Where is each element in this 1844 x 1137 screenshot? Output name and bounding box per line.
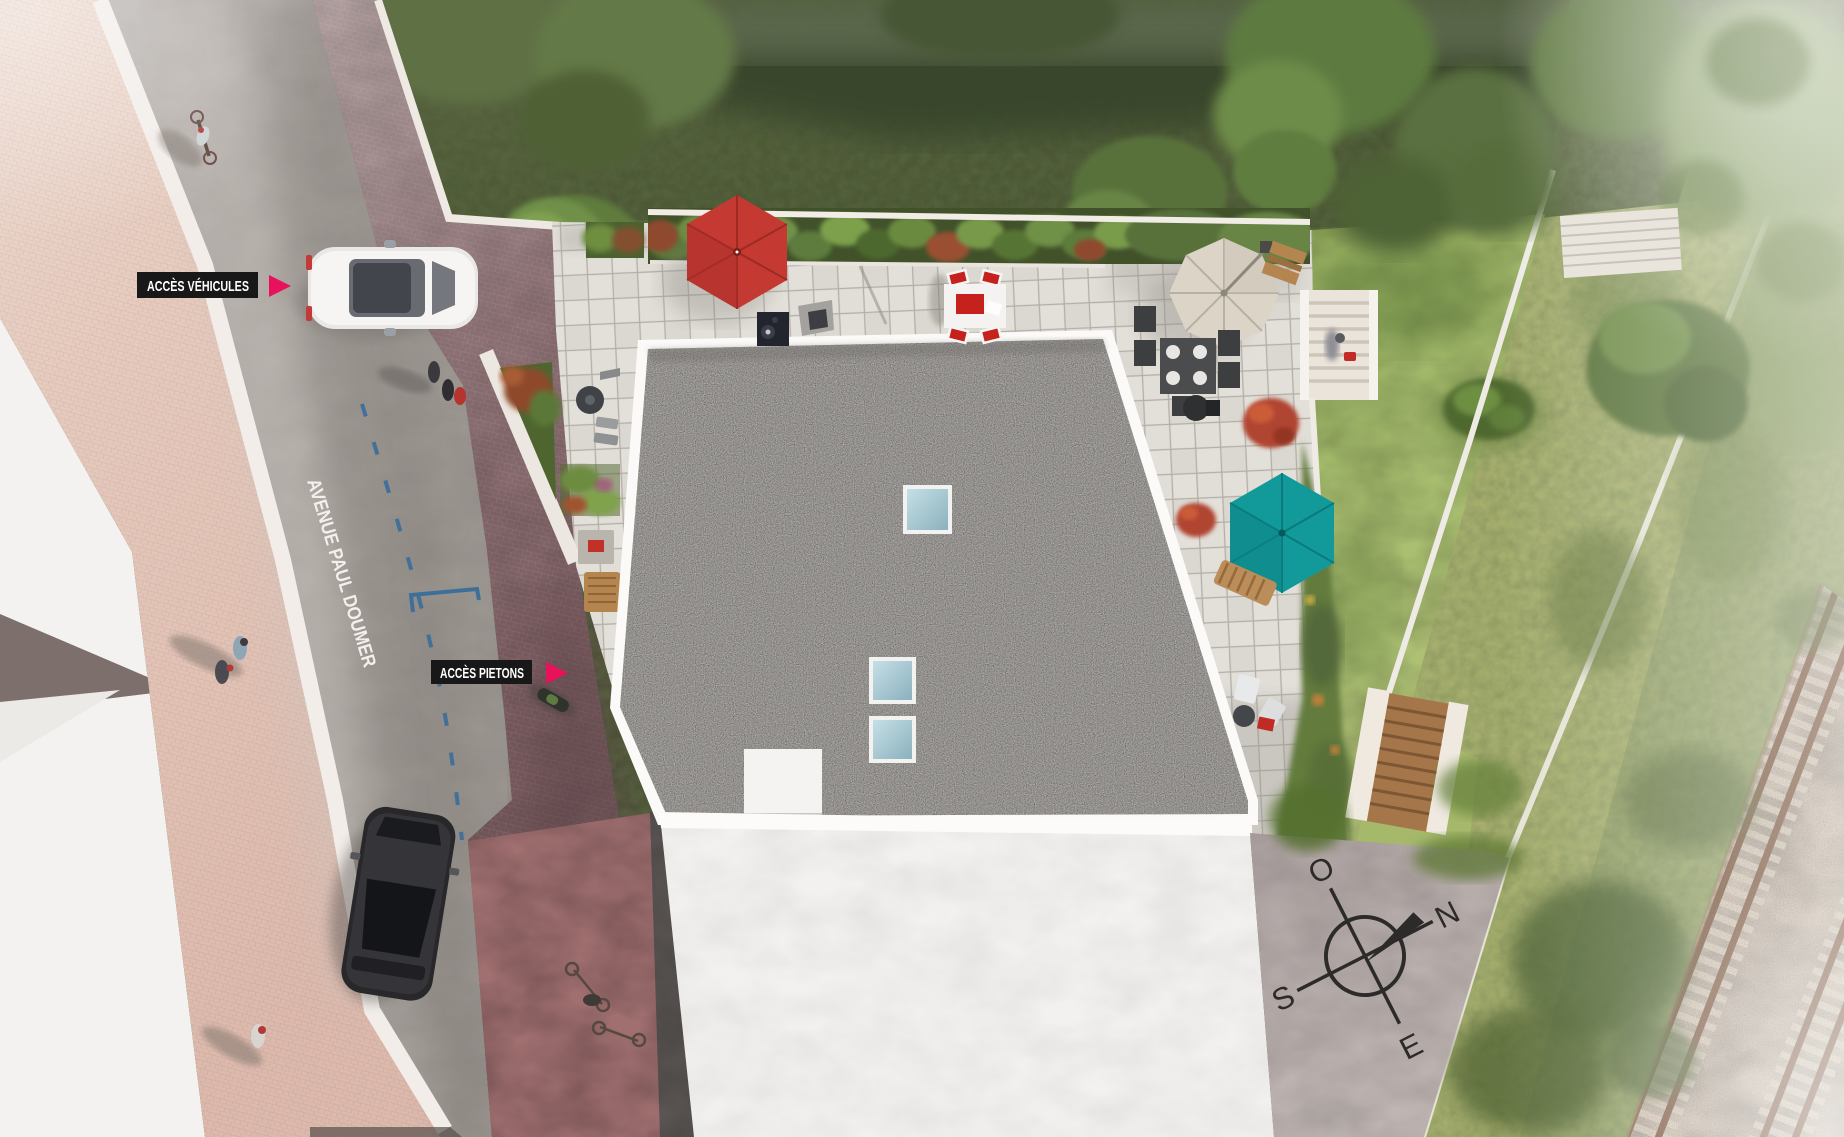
svg-text:ACCÈS PIETONS: ACCÈS PIETONS <box>440 665 524 682</box>
